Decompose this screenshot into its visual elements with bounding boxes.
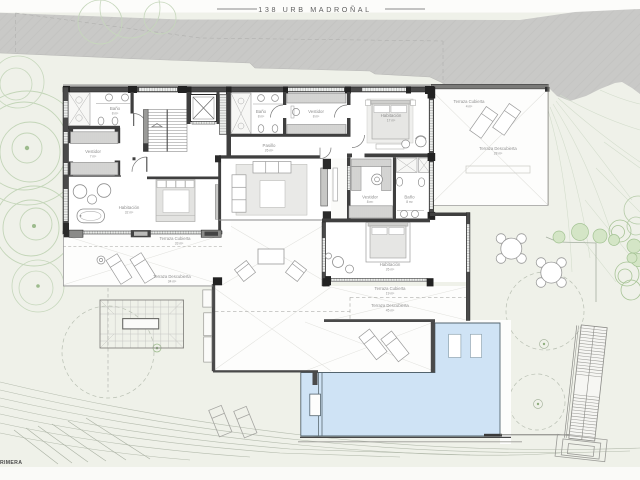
svg-text:Baño: Baño (404, 195, 415, 200)
svg-text:Habitación: Habitación (380, 262, 401, 267)
svg-text:19 m²: 19 m² (386, 292, 395, 296)
svg-text:RIMERA: RIMERA (0, 460, 22, 466)
svg-text:Habitación: Habitación (381, 113, 402, 118)
svg-text:8 m²: 8 m² (258, 115, 265, 119)
svg-text:Vestidor: Vestidor (85, 149, 101, 154)
svg-text:Terraza Cubierta: Terraza Cubierta (375, 286, 407, 291)
svg-text:Pasillo: Pasillo (263, 143, 276, 148)
svg-text:34 m²: 34 m² (168, 280, 177, 284)
svg-text:Terraza Descubierta: Terraza Descubierta (479, 146, 517, 151)
svg-text:Terraza Cubierta: Terraza Cubierta (160, 236, 192, 241)
svg-text:138 URB MADROÑAL: 138 URB MADROÑAL (258, 5, 372, 14)
svg-text:8 m²: 8 m² (406, 200, 413, 204)
svg-text:17 m²: 17 m² (387, 119, 396, 123)
svg-text:Vestidor: Vestidor (362, 195, 378, 200)
svg-text:Terraza Descubierta: Terraza Descubierta (153, 274, 191, 279)
svg-text:8 m²: 8 m² (313, 115, 320, 119)
svg-text:Baño: Baño (110, 106, 121, 111)
svg-text:45 m²: 45 m² (386, 309, 395, 313)
svg-text:8 m²: 8 m² (112, 112, 119, 116)
svg-text:Vestidor: Vestidor (308, 109, 324, 114)
svg-text:Baño: Baño (256, 109, 267, 114)
svg-text:Habitación: Habitación (119, 205, 140, 210)
svg-text:28 m²: 28 m² (494, 152, 503, 156)
svg-text:26 m²: 26 m² (265, 149, 274, 153)
svg-text:8 m²: 8 m² (367, 200, 374, 204)
svg-text:26 m²: 26 m² (386, 268, 395, 272)
svg-text:32 m²: 32 m² (125, 211, 134, 215)
svg-text:Terraza Cubierta: Terraza Cubierta (454, 99, 486, 104)
svg-text:33 m²: 33 m² (175, 242, 184, 246)
svg-text:7 m²: 7 m² (90, 155, 97, 159)
svg-text:4 m²: 4 m² (466, 105, 473, 109)
svg-text:Terraza Descubierta: Terraza Descubierta (371, 303, 409, 308)
